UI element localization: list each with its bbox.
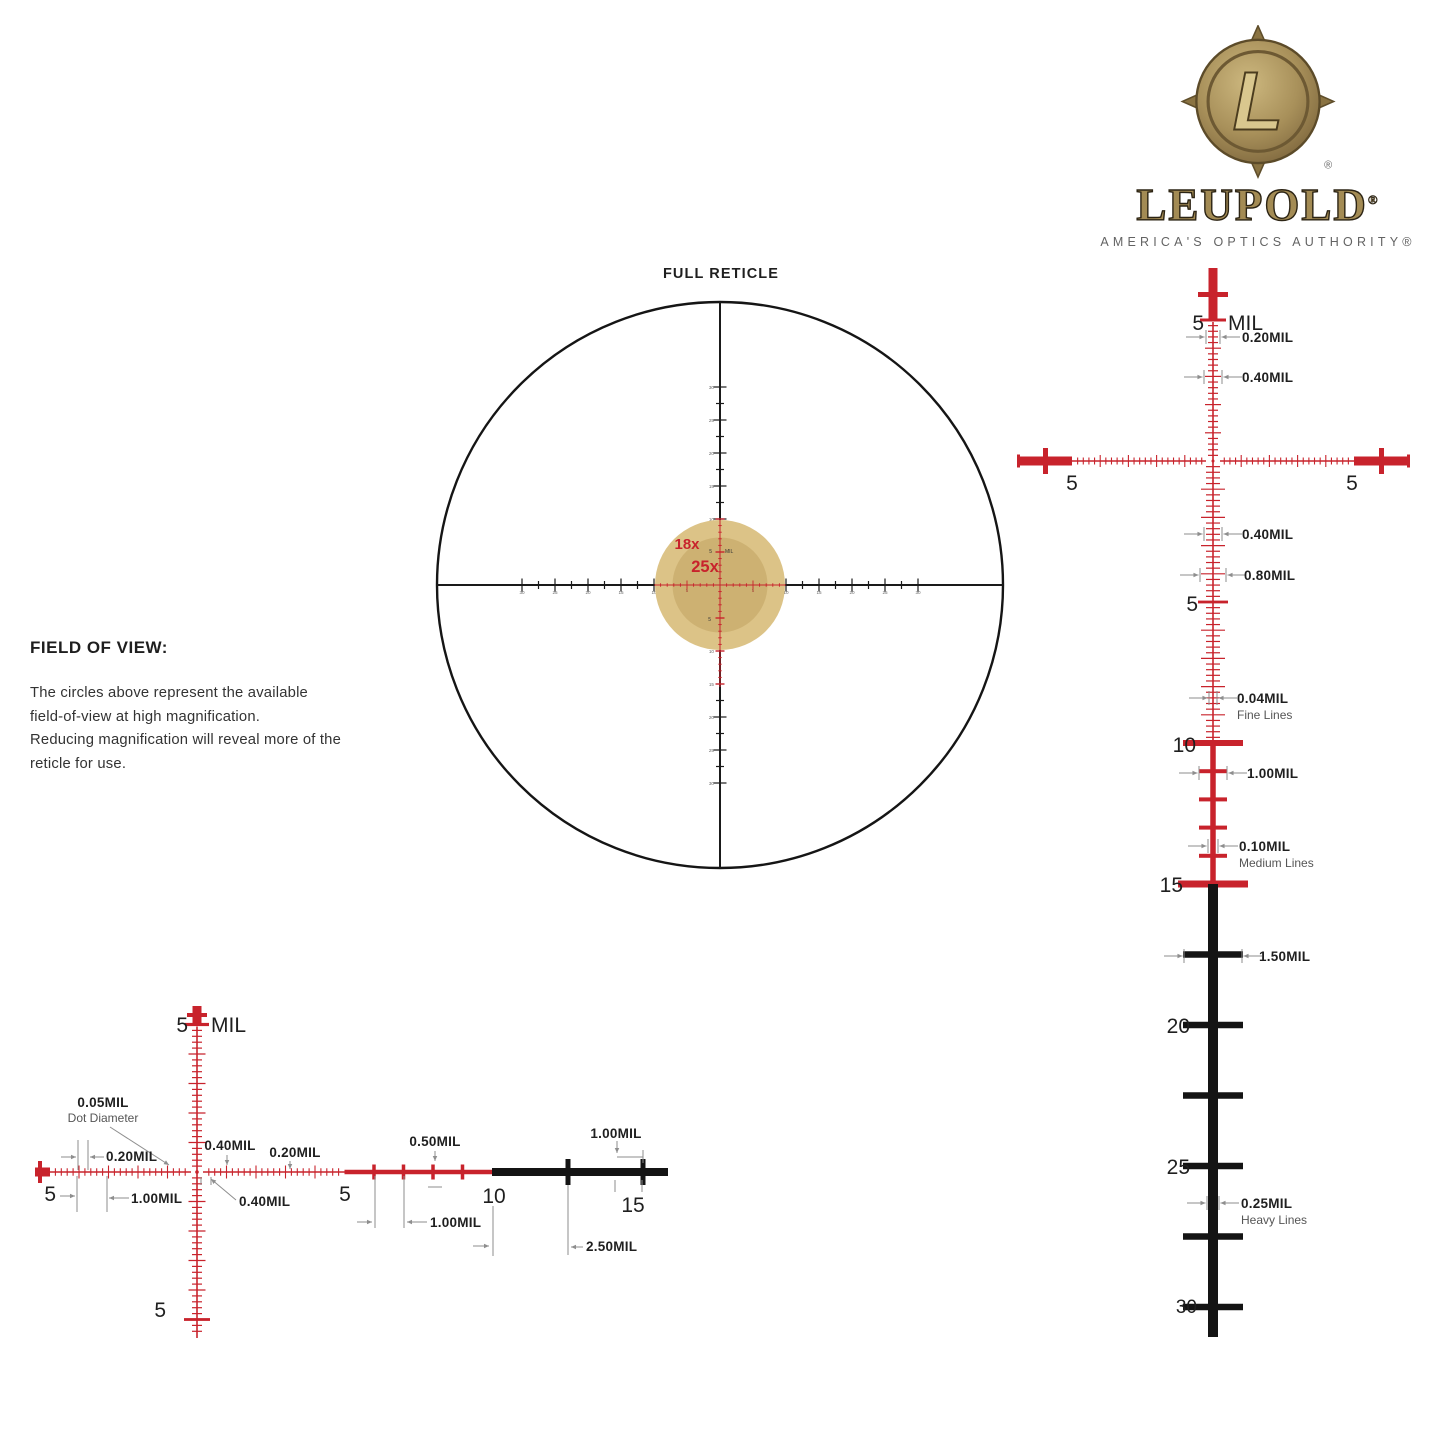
logo-monogram: L	[1233, 55, 1284, 148]
dim-label: 0.20MIL	[1242, 330, 1293, 345]
dim-label: 0.05MIL	[77, 1095, 128, 1110]
leupold-medallion-icon: L ®	[1180, 25, 1336, 181]
dim-label: 2.50MIL	[586, 1239, 637, 1254]
line-weight-label: Fine Lines	[1237, 708, 1292, 722]
line-weight-label: Heavy Lines	[1241, 1213, 1307, 1227]
axis-number: 25	[882, 590, 888, 595]
leupold-logo: L ® LEUPOLD® AMERICA'S OPTICS AUTHORITY®	[1093, 25, 1423, 249]
registered-mark: ®	[1324, 160, 1332, 172]
fov-text-line: The circles above represent the availabl…	[30, 682, 370, 706]
mil-unit: MIL	[211, 1014, 246, 1037]
dim-label: 0.50MIL	[409, 1134, 460, 1149]
fov-text-line: reticle for use.	[30, 753, 370, 777]
horizontal-reticle-detail-diagram: 5MIL0.05MILDot Diameter0.20MIL51.00MIL0.…	[25, 1000, 685, 1350]
mil-number: 5	[44, 1183, 56, 1206]
axis-number: 25	[552, 590, 558, 595]
axis-number: 30	[709, 385, 715, 390]
logo-tagline: AMERICA'S OPTICS AUTHORITY®	[1093, 235, 1423, 249]
line-weight-label: Dot Diameter	[68, 1111, 139, 1125]
dim-label: 0.20MIL	[106, 1149, 157, 1164]
magnification-25x-label: 25x	[691, 558, 719, 576]
dim-label: 0.80MIL	[1244, 568, 1295, 583]
dim-label: 0.04MIL	[1237, 691, 1288, 706]
axis-number: 20	[709, 451, 715, 456]
mil-number: 25	[1167, 1156, 1190, 1179]
mil-number: 5	[709, 549, 712, 555]
dim-label: 1.00MIL	[430, 1215, 481, 1230]
dim-label: 1.00MIL	[590, 1126, 641, 1141]
logo-wordmark: LEUPOLD®	[1093, 183, 1423, 228]
axis-number: 20	[585, 590, 591, 595]
axis-number: 25	[709, 748, 715, 753]
dim-label: 1.50MIL	[1259, 949, 1310, 964]
dim-label: 0.40MIL	[1242, 370, 1293, 385]
mil-number: 5	[176, 1014, 188, 1037]
dim-label: 0.40MIL	[204, 1138, 255, 1153]
axis-number: 25	[709, 418, 715, 423]
full-reticle-diagram: 1010101015151515202020202525252530303030…	[415, 258, 1025, 878]
field-of-view-note: FIELD OF VIEW: The circles above represe…	[30, 638, 370, 776]
fov-heading: FIELD OF VIEW:	[30, 638, 370, 658]
mil-number: 5	[1186, 593, 1198, 616]
axis-number: 20	[849, 590, 855, 595]
fov-text-line: Reducing magnification will reveal more …	[30, 729, 370, 753]
axis-number: 20	[709, 715, 715, 720]
magnification-18x-label: 18x	[674, 536, 700, 553]
dim-label: 0.10MIL	[1239, 839, 1290, 854]
axis-number: 30	[519, 590, 525, 595]
mil-number: 10	[1173, 734, 1196, 757]
axis-number: 15	[709, 484, 715, 489]
full-reticle-title: FULL RETICLE	[663, 266, 779, 282]
mil-number: 30	[1176, 1297, 1197, 1318]
dim-label: 0.40MIL	[239, 1194, 290, 1209]
mil-number: 5	[339, 1183, 351, 1206]
registered-mark: ®	[1368, 192, 1380, 207]
dim-label: 1.00MIL	[131, 1191, 182, 1206]
dim-label: 0.25MIL	[1241, 1196, 1292, 1211]
mil-number: 5	[1192, 312, 1204, 335]
axis-number: 30	[709, 781, 715, 786]
axis-number: 15	[709, 682, 715, 687]
dim-label: 0.20MIL	[269, 1145, 320, 1160]
axis-number: 15	[816, 590, 822, 595]
mil-unit: MIL	[725, 549, 734, 555]
axis-number: 30	[915, 590, 921, 595]
dim-label: 0.40MIL	[1242, 527, 1293, 542]
mil-number: 5	[1346, 472, 1358, 495]
axis-number: 15	[618, 590, 624, 595]
vertical-reticle-detail-diagram: 5MIL0.20MIL0.40MIL0.40MIL0.80MIL50.04MIL…	[1000, 258, 1445, 1348]
mil-number: 5	[1066, 472, 1078, 495]
mil-number: 10	[482, 1185, 505, 1208]
mil-number: 20	[1167, 1015, 1190, 1038]
mil-number: 5	[708, 617, 711, 623]
page: { "colors": { "red": "#c8232c", "black":…	[0, 0, 1445, 1445]
mil-number: 15	[1160, 874, 1183, 897]
mil-number: 5	[154, 1299, 166, 1322]
dim-label: 1.00MIL	[1247, 766, 1298, 781]
fov-text-line: field-of-view at high magnification.	[30, 706, 370, 730]
mil-number: 15	[621, 1194, 644, 1217]
line-weight-label: Medium Lines	[1239, 856, 1314, 870]
